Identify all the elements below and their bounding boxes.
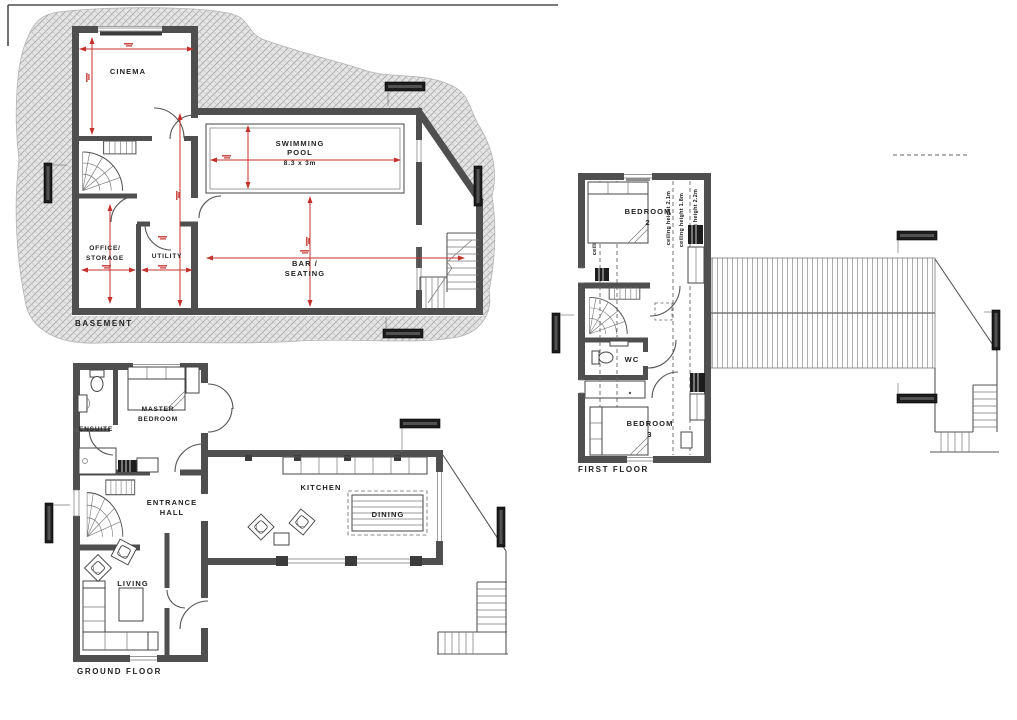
wc-fixtures [585,341,645,398]
ground-floor-title: GROUND FLOOR [77,667,162,676]
basement-title: BASEMENT [75,319,133,328]
label-bedroom2-num: 2 [645,218,650,227]
bedroom2-bed [588,182,704,283]
label-office-2: STORAGE [86,255,124,262]
label-kitchen: KITCHEN [300,483,341,492]
master-tv-unit [118,458,158,472]
kitchen-chairs [248,509,315,545]
label-office-1: OFFICE/ [89,245,121,252]
bedroom3-bed [590,373,705,455]
first-floor-plan: ceiling height 1.1m ceiling height 2.1m … [552,173,1000,474]
label-wc: WC [625,355,640,364]
label-bedroom3: BEDROOM [627,419,674,428]
floor-plan-sheet: CINEMA SWIMMING POOL 8.3 x 3m OFFICE/ ST… [0,0,1017,720]
label-master-2: BEDROOM [138,416,178,423]
label-living: LIVING [117,579,149,588]
label-pool-dims: 8.3 x 3m [284,160,316,167]
roof [711,258,935,368]
first-outside-stairs [930,259,999,452]
ground-outside-stairs [437,455,508,654]
label-bedroom2: BEDROOM [625,207,672,216]
label-bar-1: BAR / [292,259,318,268]
ground-dimension-tags [45,419,505,547]
master-bed [128,367,199,410]
living-furniture [83,539,158,650]
cinema-window [98,27,162,36]
ground-floor-plan: MASTER BEDROOM ENSUITE ENTRANCE HALL KIT… [45,363,508,676]
label-utility: UTILITY [152,253,183,260]
ceiling-label-2: ceiling height 2.1m [666,191,672,245]
label-ensuite: ENSUITE [79,426,113,433]
label-hall-1: ENTRANCE [147,498,197,507]
floor-plan-drawing: CINEMA SWIMMING POOL 8.3 x 3m OFFICE/ ST… [0,0,1017,720]
basement-plan: CINEMA SWIMMING POOL 8.3 x 3m OFFICE/ ST… [16,8,495,344]
label-pool-1: SWIMMING [276,139,325,148]
label-bar-2: SEATING [285,269,325,278]
label-pool-2: POOL [287,148,313,157]
label-dining: DINING [372,510,405,519]
kitchen-counters [283,457,427,474]
ceiling-label-3: ceiling height 1.8m [679,193,685,247]
label-hall-2: HALL [160,508,184,517]
label-cinema: CINEMA [110,67,146,76]
first-floor-title: FIRST FLOOR [578,465,649,474]
ground-spiral-stair [87,480,135,537]
first-door-arcs [648,286,680,398]
first-spiral-stair [589,287,639,334]
ensuite-fixtures [78,370,116,474]
label-bedroom3-num: 3 [647,430,652,439]
label-master-1: MASTER [142,406,175,413]
